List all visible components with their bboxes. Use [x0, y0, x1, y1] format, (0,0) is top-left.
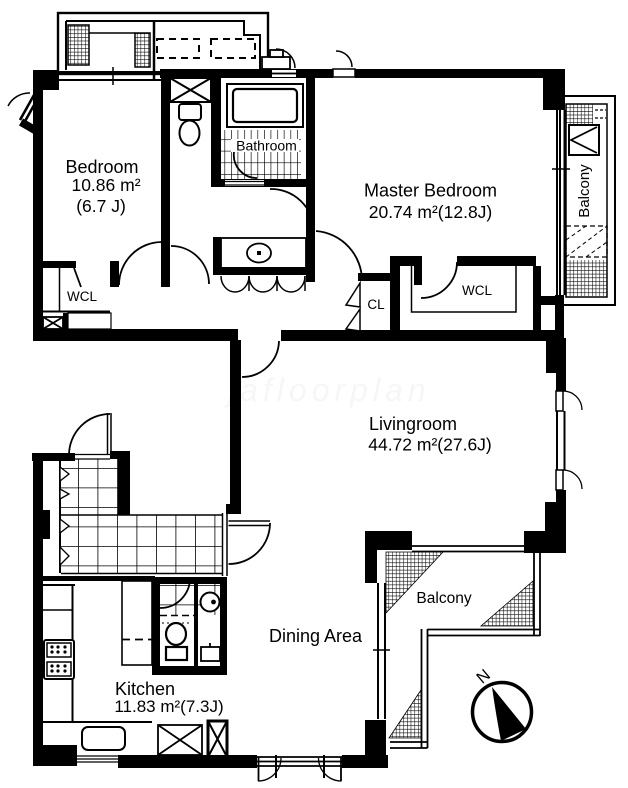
svg-text:WCL: WCL — [462, 283, 492, 298]
svg-text:Master Bedroom: Master Bedroom — [364, 181, 497, 201]
svg-text:CL: CL — [367, 297, 385, 312]
svg-text:(6.7 J): (6.7 J) — [76, 196, 126, 216]
svg-text:20.74 m²(12.8J): 20.74 m²(12.8J) — [369, 202, 493, 222]
svg-text:Kitchen: Kitchen — [115, 679, 175, 699]
svg-text:Bedroom: Bedroom — [65, 157, 138, 177]
svg-text:WCL: WCL — [67, 289, 97, 304]
svg-text:jafloorplan: jafloorplan — [224, 372, 431, 408]
svg-text:44.72 m²(27.6J): 44.72 m²(27.6J) — [368, 435, 492, 455]
svg-text:Balcony: Balcony — [576, 164, 593, 218]
svg-text:Livingroom: Livingroom — [369, 414, 457, 434]
svg-text:11.83 m²(7.3J): 11.83 m²(7.3J) — [114, 697, 223, 716]
svg-text:Balcony: Balcony — [416, 590, 471, 607]
svg-text:Dining Area: Dining Area — [269, 626, 363, 646]
svg-text:10.86 m²: 10.86 m² — [71, 175, 140, 195]
svg-text:Bathroom: Bathroom — [236, 138, 297, 154]
